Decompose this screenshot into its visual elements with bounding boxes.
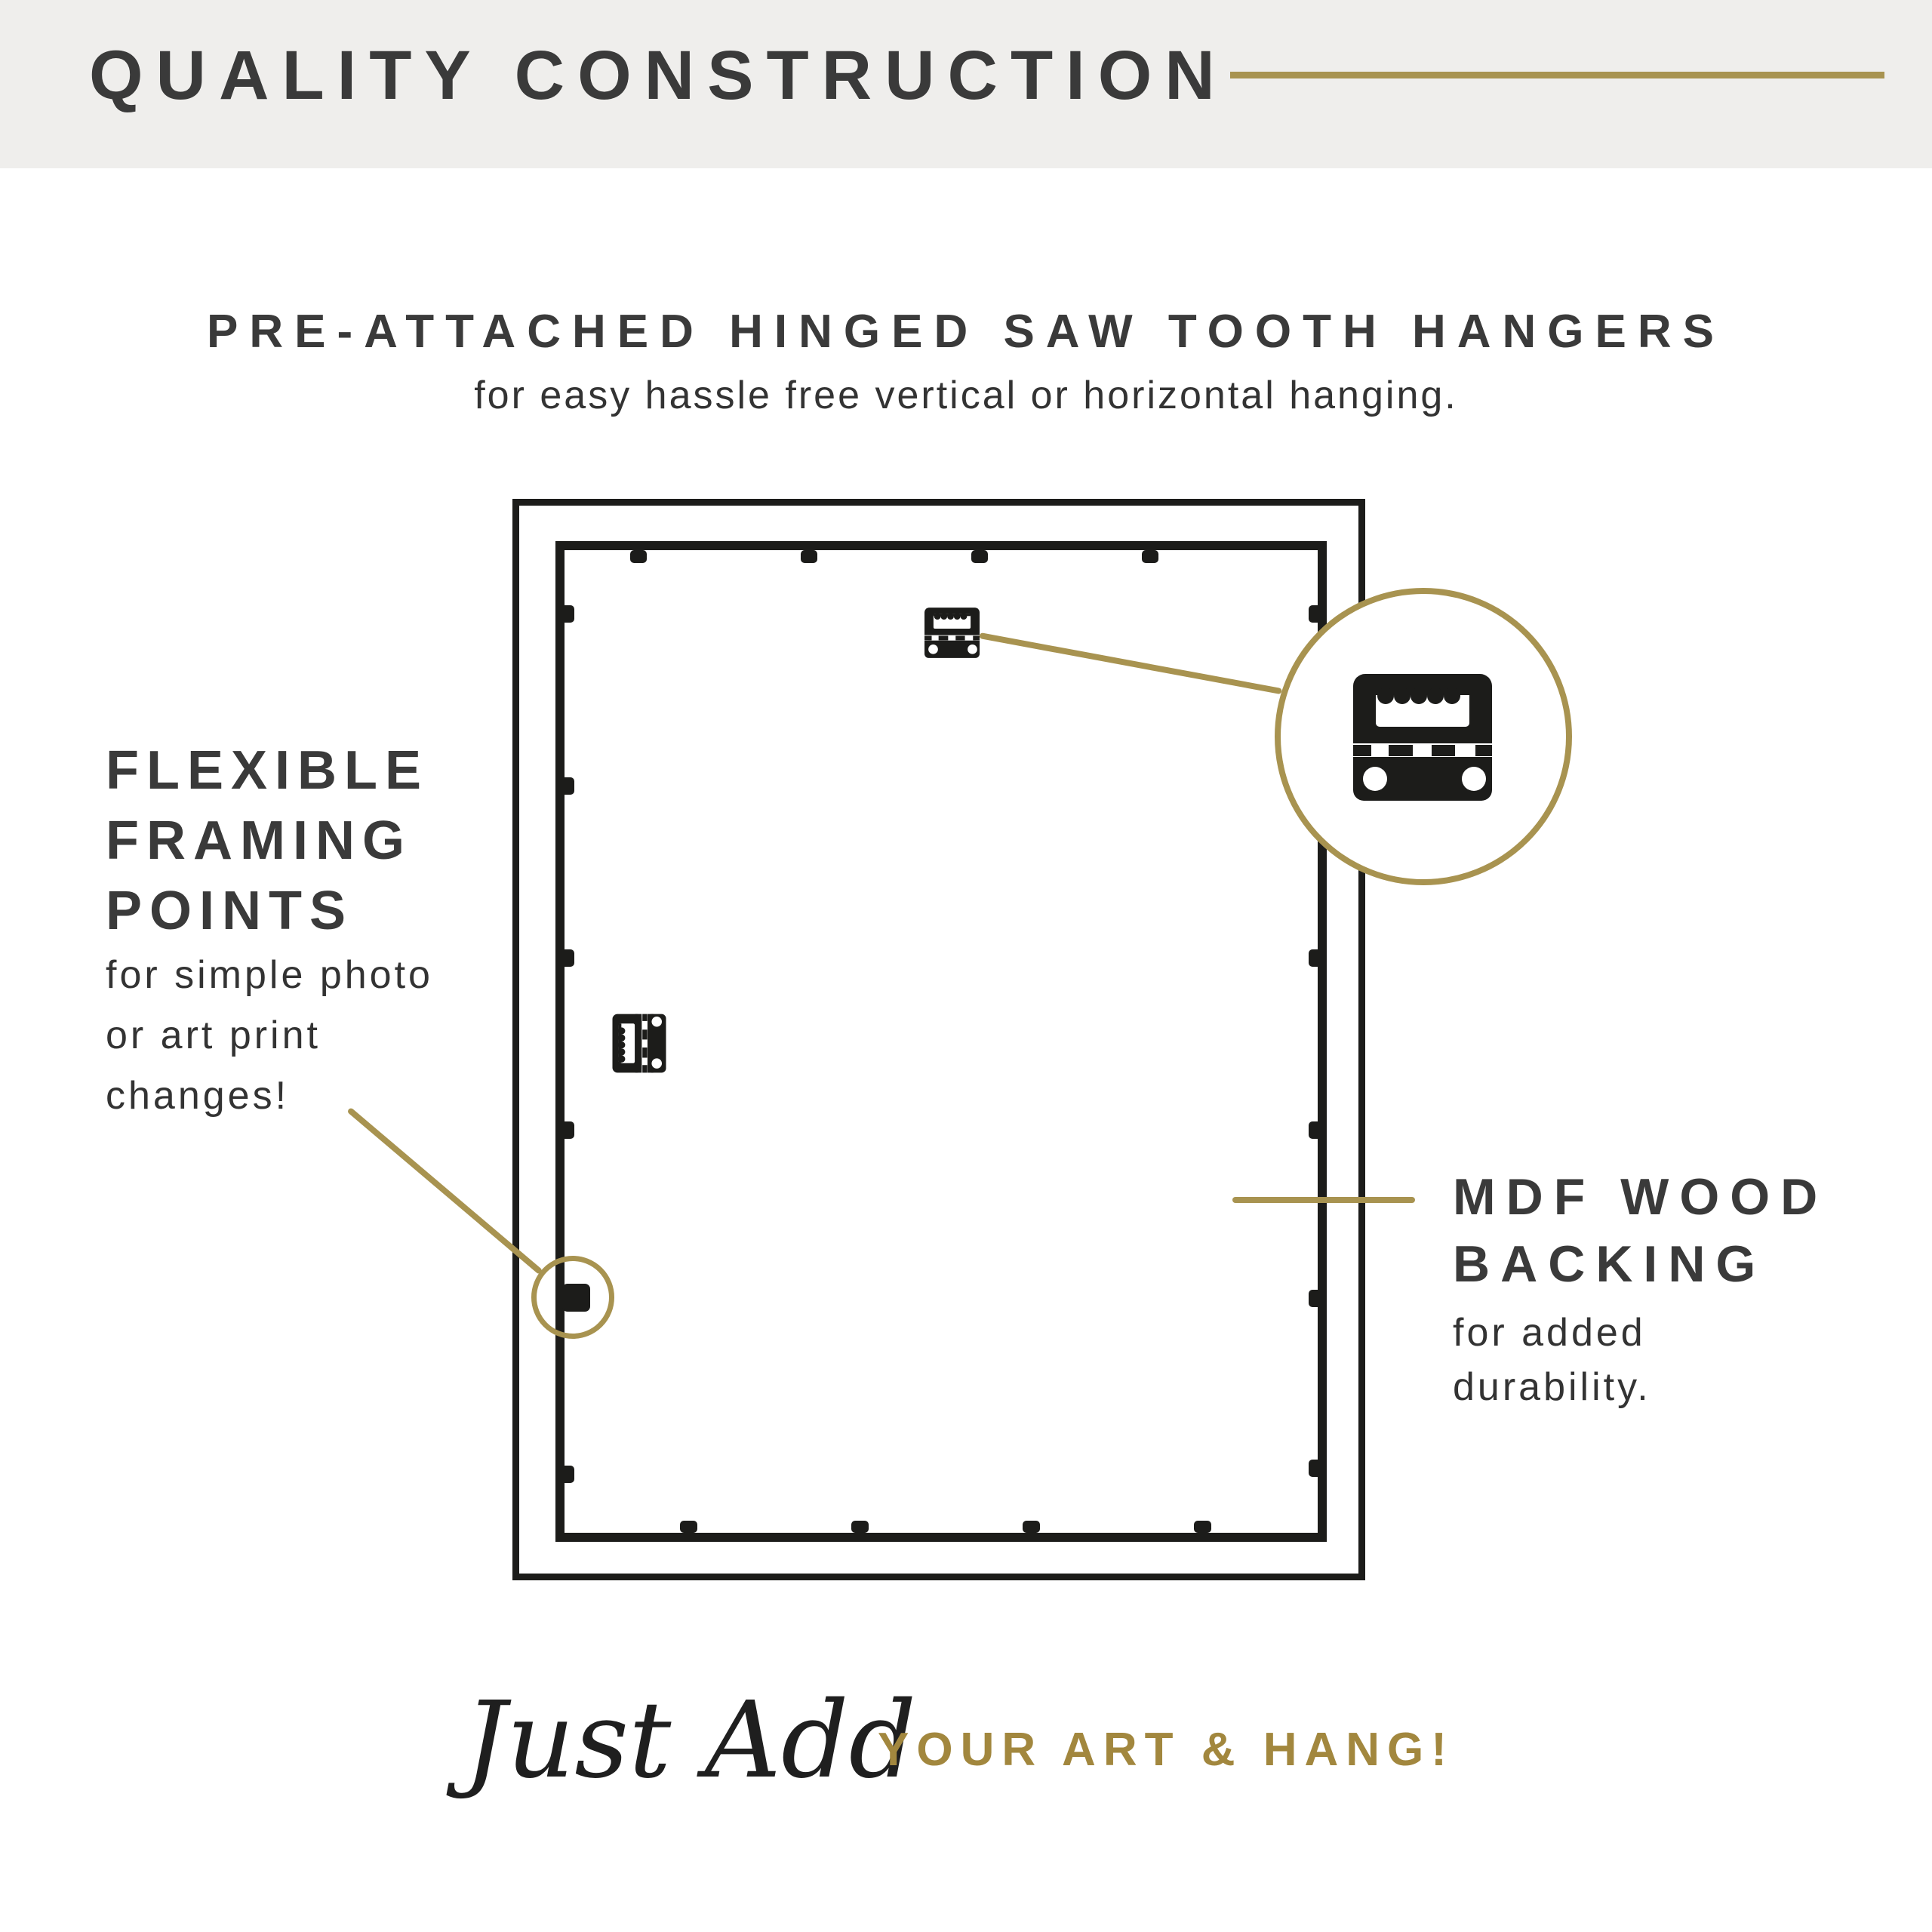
framing-point-zoom-circle: [531, 1256, 614, 1339]
framing-point: [630, 550, 647, 563]
mdf-backing-board: [555, 541, 1327, 1542]
framing-point: [561, 949, 574, 967]
framing-point: [1309, 1121, 1322, 1139]
framing-point: [561, 605, 574, 623]
framing-point: [1309, 605, 1322, 623]
callout-body-line: durability.: [1453, 1360, 1651, 1414]
callout-body-line: for simple photo: [106, 945, 433, 1005]
hero-title: PRE-ATTACHED HINGED SAW TOOTH HANGERS: [0, 305, 1932, 358]
framing-point: [561, 777, 574, 795]
framing-point: [801, 550, 817, 563]
framing-point: [561, 1466, 574, 1483]
callout-body-line: or art print: [106, 1005, 433, 1066]
sawtooth-hanger-icon: [1353, 674, 1492, 801]
framing-point: [1309, 1290, 1322, 1307]
cta-text: YOUR ART & HANG!: [878, 1723, 1454, 1777]
framing-point: [1309, 1460, 1322, 1477]
framing-point: [1194, 1521, 1211, 1533]
callout-body-line: changes!: [106, 1066, 433, 1126]
page-title: QUALITY CONSTRUCTION: [89, 36, 1228, 115]
framing-point: [851, 1521, 869, 1533]
framing-point: [971, 550, 988, 563]
callout-body-line: for added: [1453, 1306, 1651, 1360]
hero-subtitle: for easy hassle free vertical or horizon…: [0, 373, 1932, 418]
callout-title-line: MDF WOOD: [1453, 1164, 1828, 1231]
just-add-script-text: Just Add: [464, 1679, 916, 1802]
hinged-sawtooth-hanger-icon: [612, 1014, 666, 1072]
header-gold-rule: [1230, 72, 1884, 78]
sawtooth-hanger-icon: [924, 608, 980, 658]
callout-title-line: POINTS: [106, 876, 429, 946]
mdf-wood-backing-title: MDF WOOD BACKING: [1453, 1164, 1828, 1298]
framing-point: [1023, 1521, 1040, 1533]
leader-line-mdf: [1232, 1197, 1415, 1203]
header-band: QUALITY CONSTRUCTION: [0, 0, 1932, 168]
callout-title-line: FLEXIBLE: [106, 736, 429, 806]
flexible-framing-points-title: FLEXIBLE FRAMING POINTS: [106, 736, 429, 946]
flexible-framing-points-body: for simple photo or art print changes!: [106, 945, 433, 1126]
mdf-wood-backing-body: for added durability.: [1453, 1306, 1651, 1414]
callout-title-line: BACKING: [1453, 1231, 1828, 1298]
framing-point: [680, 1521, 697, 1533]
framing-point: [561, 1121, 574, 1139]
callout-title-line: FRAMING: [106, 806, 429, 876]
quality-construction-infographic: QUALITY CONSTRUCTION PRE-ATTACHED HINGED…: [0, 0, 1932, 1932]
framing-point: [1309, 949, 1322, 967]
framing-point: [1142, 550, 1158, 563]
